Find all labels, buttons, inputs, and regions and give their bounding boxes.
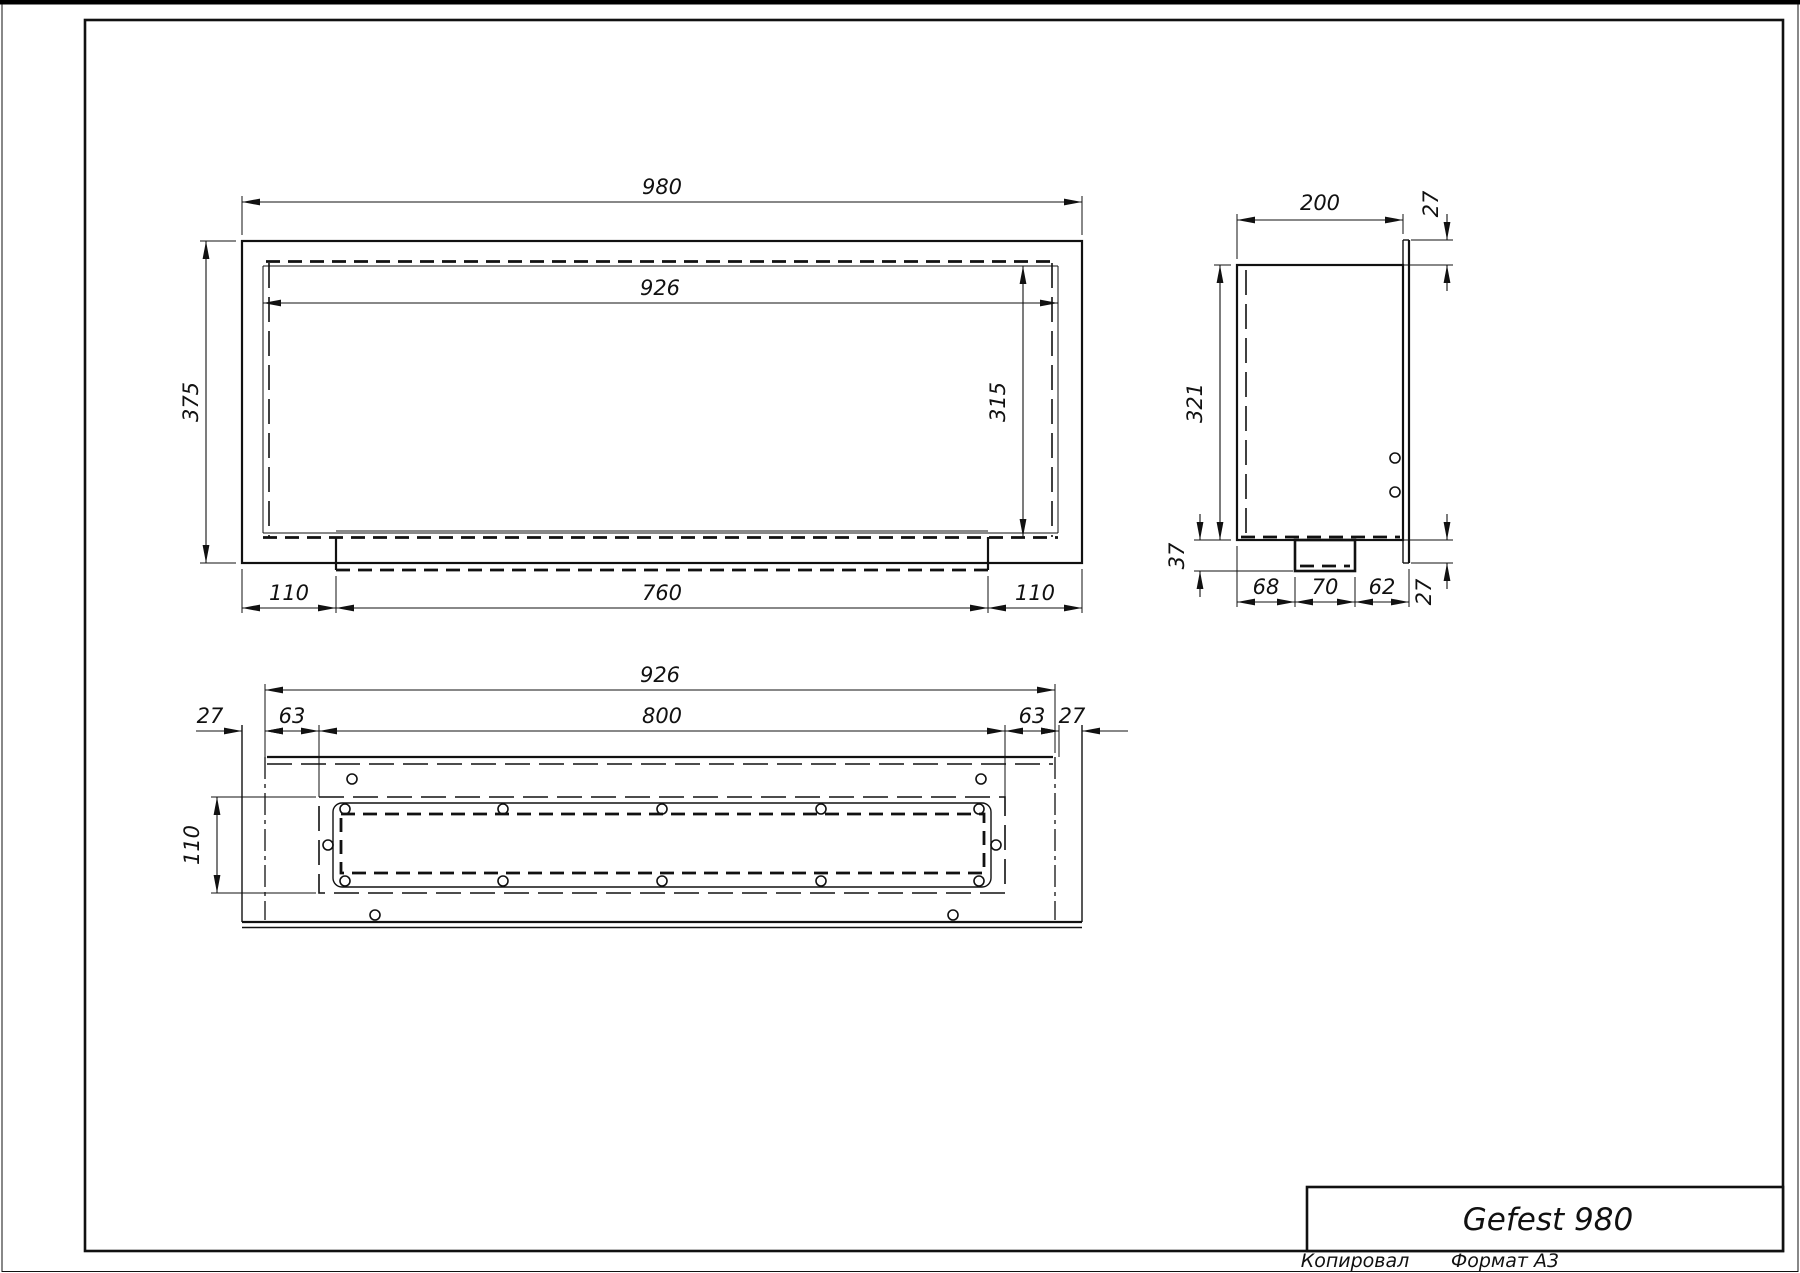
dim-label-800: 800 xyxy=(642,704,682,728)
bottom-flange-holes xyxy=(347,774,986,920)
dim-label-27-right: 27 xyxy=(1059,704,1086,728)
dim-label-110-right: 110 xyxy=(1015,581,1055,605)
side-hole-lower xyxy=(1390,487,1400,497)
dim-label-68: 68 xyxy=(1253,575,1280,599)
dim-front-375: 375 xyxy=(179,241,236,563)
bottom-burner-frame xyxy=(333,803,991,887)
dim-label-63-left: 63 xyxy=(279,704,306,728)
dim-label-27-bottom: 27 xyxy=(1412,578,1436,605)
dim-label-27-top: 27 xyxy=(1419,190,1443,217)
dim-label-321: 321 xyxy=(1183,383,1207,423)
dim-label-110-opening: 110 xyxy=(180,825,204,865)
dim-label-375: 375 xyxy=(179,382,203,422)
footer-format-label: Формат А3 xyxy=(1451,1250,1559,1272)
dim-label-926-bottom: 926 xyxy=(640,663,680,687)
dim-side-27-bottom: 27 xyxy=(1403,514,1453,605)
dim-front-980: 980 xyxy=(242,175,1082,235)
side-hole-upper xyxy=(1390,453,1400,463)
page-frame xyxy=(0,0,1800,1272)
dim-side-27-top: 27 xyxy=(1403,190,1453,291)
front-view: 980 926 375 315 110 760 xyxy=(179,175,1082,613)
bottom-opening-hidden xyxy=(319,797,1005,893)
dim-side-bottom-row: 68 70 62 xyxy=(1237,546,1409,607)
dim-label-63-right: 63 xyxy=(1019,704,1046,728)
dim-label-62: 62 xyxy=(1369,575,1396,599)
side-outline xyxy=(1237,265,1403,540)
dim-label-980: 980 xyxy=(642,175,682,199)
dim-label-315: 315 xyxy=(986,382,1010,422)
footer-row: Копировал Формат А3 xyxy=(1301,1250,1559,1272)
dim-bottom-top-row: 27 63 800 63 27 xyxy=(196,704,1128,797)
drawing-canvas: 980 926 375 315 110 760 xyxy=(0,0,1800,1273)
bottom-view: 926 27 63 800 63 27 110 xyxy=(180,663,1128,928)
dim-front-315: 315 xyxy=(986,266,1023,537)
dim-label-200: 200 xyxy=(1300,191,1340,215)
drawing-frame xyxy=(85,20,1783,1251)
dim-label-70: 70 xyxy=(1312,575,1339,599)
top-edge-bar xyxy=(0,0,1800,5)
dim-front-bottom-row: 110 760 110 xyxy=(242,569,1082,613)
dim-label-760: 760 xyxy=(642,581,682,605)
dim-side-321: 321 xyxy=(1183,265,1231,540)
side-view: 200 27 321 37 xyxy=(1165,190,1453,607)
dim-front-926: 926 xyxy=(263,276,1058,303)
dim-bottom-110: 110 xyxy=(180,797,316,893)
title-block-title: Gefest 980 xyxy=(1463,1202,1633,1238)
dim-label-37: 37 xyxy=(1165,542,1189,569)
dim-side-200: 200 xyxy=(1237,191,1403,259)
dim-label-110-left: 110 xyxy=(269,581,309,605)
dim-label-27-left: 27 xyxy=(197,704,224,728)
side-drain-box xyxy=(1295,540,1355,571)
dim-label-926: 926 xyxy=(640,276,680,300)
footer-copied-label: Копировал xyxy=(1301,1250,1410,1272)
title-block: Gefest 980 xyxy=(1307,1187,1783,1251)
bottom-outline xyxy=(242,725,1082,928)
